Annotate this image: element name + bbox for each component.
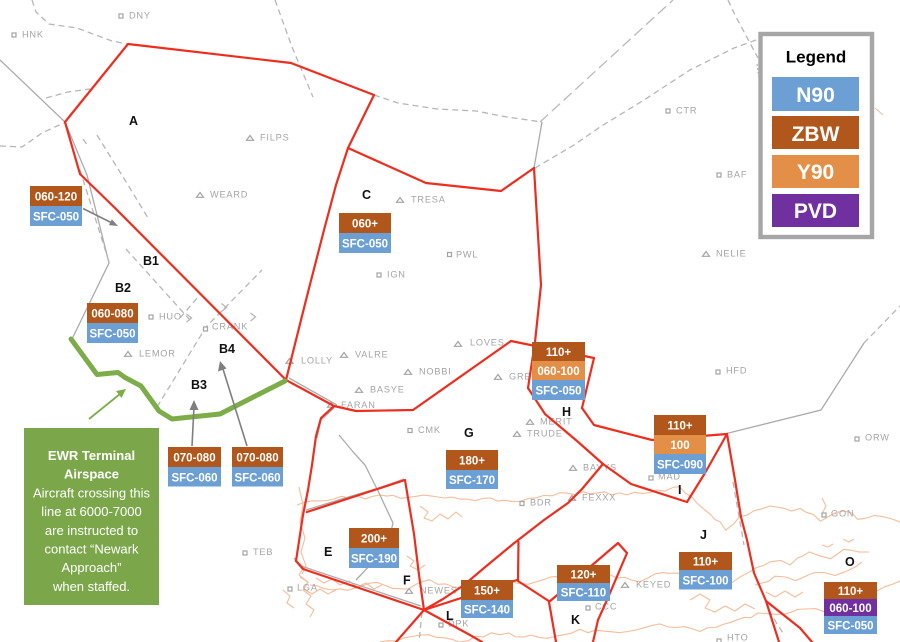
svg-text:Aircraft crossing this: Aircraft crossing this: [33, 485, 151, 500]
svg-text:SFC-090: SFC-090: [657, 460, 703, 472]
svg-text:LOLLY: LOLLY: [301, 356, 333, 366]
svg-text:BDR: BDR: [530, 498, 552, 508]
svg-text:BASYE: BASYE: [370, 385, 405, 395]
svg-text:Y90: Y90: [797, 161, 834, 184]
svg-text:I: I: [678, 483, 681, 497]
svg-text:Approach”: Approach”: [62, 560, 122, 575]
svg-text:SFC-060: SFC-060: [234, 473, 280, 485]
svg-text:B4: B4: [219, 342, 235, 356]
svg-text:E: E: [324, 545, 332, 559]
svg-text:WEARD: WEARD: [210, 190, 248, 200]
svg-text:PWL: PWL: [456, 250, 478, 260]
svg-text:line at 6000-7000: line at 6000-7000: [41, 504, 141, 519]
svg-text:SFC-050: SFC-050: [535, 386, 581, 398]
svg-text:B3: B3: [191, 378, 207, 392]
svg-text:N90: N90: [796, 84, 835, 107]
svg-text:EWR Terminal: EWR Terminal: [48, 448, 135, 463]
svg-text:G: G: [464, 426, 474, 440]
svg-text:contact “Newark: contact “Newark: [45, 542, 139, 557]
svg-text:FILPS: FILPS: [260, 133, 290, 143]
svg-text:SFC-050: SFC-050: [827, 621, 873, 633]
svg-text:L: L: [446, 609, 454, 623]
svg-text:SFC-050: SFC-050: [89, 329, 135, 341]
svg-text:SFC-190: SFC-190: [351, 554, 397, 566]
svg-text:SFC-050: SFC-050: [33, 212, 79, 224]
svg-text:K: K: [571, 613, 580, 627]
svg-text:HFD: HFD: [726, 366, 747, 376]
svg-text:DNY: DNY: [129, 11, 151, 21]
svg-text:FEXXX: FEXXX: [582, 493, 616, 503]
svg-text:CMK: CMK: [418, 425, 441, 435]
svg-text:LOVES: LOVES: [470, 338, 505, 348]
svg-text:Legend: Legend: [786, 48, 846, 67]
svg-text:A: A: [129, 114, 138, 128]
svg-text:C: C: [362, 188, 371, 202]
svg-text:ORW: ORW: [865, 433, 890, 443]
svg-text:GON: GON: [831, 509, 854, 519]
svg-text:NOBBI: NOBBI: [419, 367, 452, 377]
svg-text:LGA: LGA: [297, 583, 318, 593]
svg-text:HUO: HUO: [159, 312, 182, 322]
svg-text:120+: 120+: [571, 570, 597, 582]
svg-text:100: 100: [670, 440, 689, 452]
svg-text:Airspace: Airspace: [64, 467, 119, 482]
svg-text:SFC-170: SFC-170: [449, 475, 495, 487]
svg-text:070-080: 070-080: [173, 453, 215, 465]
svg-text:110+: 110+: [693, 557, 719, 569]
svg-text:110+: 110+: [546, 347, 572, 359]
svg-text:O: O: [845, 555, 855, 569]
svg-text:ZBW: ZBW: [792, 123, 840, 146]
svg-text:060-080: 060-080: [91, 309, 133, 321]
svg-text:SFC-100: SFC-100: [682, 576, 728, 588]
svg-text:SFC-140: SFC-140: [464, 605, 510, 617]
svg-text:HNK: HNK: [22, 30, 44, 40]
svg-text:TRESA: TRESA: [411, 195, 446, 205]
svg-text:060-100: 060-100: [537, 366, 579, 378]
svg-text:110+: 110+: [667, 421, 693, 433]
svg-text:200+: 200+: [361, 534, 387, 546]
svg-text:IGN: IGN: [387, 270, 406, 280]
svg-text:when staffed.: when staffed.: [52, 579, 130, 594]
svg-text:F: F: [403, 574, 411, 588]
svg-text:VALRE: VALRE: [355, 350, 388, 360]
svg-text:070-080: 070-080: [236, 453, 278, 465]
svg-text:HTO: HTO: [727, 633, 749, 642]
svg-text:CTR: CTR: [676, 106, 697, 116]
svg-text:PVD: PVD: [794, 200, 837, 223]
svg-text:110+: 110+: [838, 586, 864, 598]
svg-text:KEYED: KEYED: [636, 580, 671, 590]
svg-text:TRUDE: TRUDE: [527, 429, 563, 439]
svg-text:are instructed to: are instructed to: [45, 523, 138, 538]
svg-text:SFC-050: SFC-050: [342, 239, 388, 251]
svg-text:060+: 060+: [352, 219, 378, 231]
svg-text:TEB: TEB: [253, 547, 273, 557]
svg-text:J: J: [700, 528, 707, 542]
svg-text:SFC-060: SFC-060: [171, 473, 217, 485]
svg-text:060-100: 060-100: [829, 603, 871, 615]
svg-text:BAF: BAF: [727, 170, 747, 180]
svg-text:B1: B1: [143, 254, 159, 268]
svg-text:LEMOR: LEMOR: [139, 349, 176, 359]
svg-text:B2: B2: [115, 281, 131, 295]
svg-text:SFC-110: SFC-110: [561, 588, 606, 600]
svg-text:180+: 180+: [459, 456, 485, 468]
svg-text:150+: 150+: [474, 586, 500, 598]
svg-text:H: H: [562, 405, 571, 419]
svg-text:NELIE: NELIE: [716, 249, 747, 259]
svg-text:060-120: 060-120: [35, 192, 77, 204]
